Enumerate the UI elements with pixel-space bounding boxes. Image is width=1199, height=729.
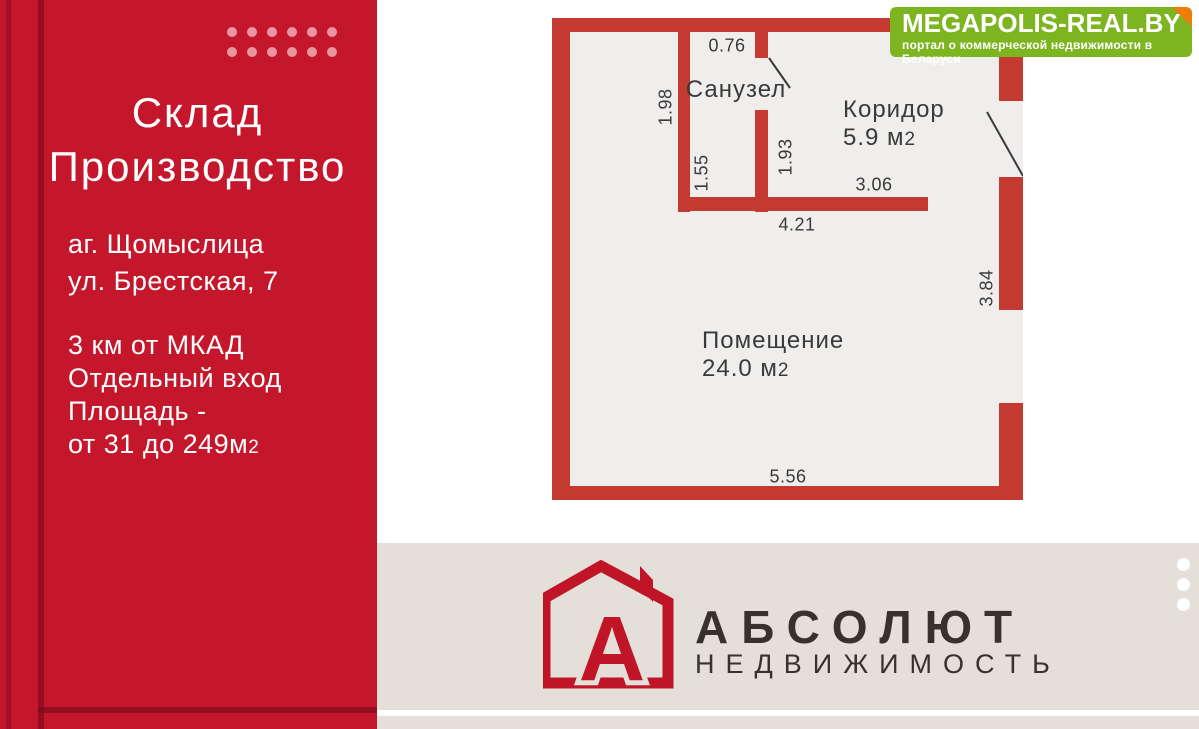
brand-name: АБСОЛЮТ [695,600,1025,654]
megapolis-title: MEGAPOLIS-REAL.BY [890,7,1192,38]
real-estate-flyer: Склад Производство аг. Щомыслица ул. Бре… [0,0,1199,729]
info-line-area-range: от 31 до 249м2 [68,428,282,464]
megapolis-logo-banner[interactable]: MEGAPOLIS-REAL.BY портал о коммерческой … [890,7,1192,57]
dim-5-56: 5.56 [769,467,806,488]
panel-frame-horizontal [38,707,377,713]
dot [327,27,337,37]
dot [1177,598,1190,611]
dim-4-21: 4.21 [778,215,815,236]
folded-corner-icon [1172,7,1192,27]
address-line-2: ул. Брестская, 7 [68,263,279,300]
dots-decoration [227,27,337,57]
room-label-corridor: Коридор 5.9 м2 [843,96,945,154]
dim-door-width: 0.76 [708,36,745,57]
address-block: аг. Щомыслица ул. Брестская, 7 [68,226,279,300]
dot [1177,558,1190,571]
dim-1-98: 1.98 [656,88,677,125]
dot [267,47,277,57]
area-superscript: 2 [248,437,259,458]
dot [327,47,337,57]
footer-banner: А АБСОЛЮТ НЕДВИЖИМОСТЬ [377,543,1199,710]
title-line-2: Производство [24,140,371,194]
room-label-main-room: Помещение 24.0 м2 [702,327,844,385]
megapolis-subtitle: портал о коммерческой недвижимости в Бел… [890,38,1192,66]
dot [247,27,257,37]
brand-subtitle: НЕДВИЖИМОСТЬ [695,649,1061,680]
dot [307,47,317,57]
info-line-entrance: Отдельный вход [68,362,282,395]
dot [1177,578,1190,591]
room-label-bathroom: Санузел [686,76,787,104]
dim-1-55: 1.55 [692,154,713,191]
logo-letter: А [579,598,645,690]
room-area-main-room: 24.0 м2 [702,355,844,385]
room-area-corridor: 5.9 м2 [843,124,945,154]
title-line-1: Склад [24,86,371,140]
footer-dots-decoration [1177,558,1190,611]
door-swing-lines [552,18,1023,500]
dot [287,27,297,37]
dot [287,47,297,57]
dot [227,47,237,57]
info-line-area-label: Площадь - [68,395,282,428]
dim-3-06: 3.06 [855,175,892,196]
absolut-house-logo-icon: А [543,558,678,690]
sidebar-panel: Склад Производство аг. Щомыслица ул. Бре… [0,0,377,729]
address-line-1: аг. Щомыслица [68,226,279,263]
dot [307,27,317,37]
dot [227,27,237,37]
entry-door-swing-line [987,112,1023,176]
dot [267,27,277,37]
property-info-block: 3 км от МКАД Отдельный вход Площадь - от… [68,329,282,464]
dim-1-93: 1.93 [776,138,797,175]
panel-spine-line [6,0,11,729]
dot [247,47,257,57]
floor-plan: 0.76 1.98 1.55 1.93 3.06 4.21 3.84 5.56 … [552,18,1023,500]
footer-bottom-strip [377,716,1199,729]
dim-3-84: 3.84 [977,269,998,306]
info-line-distance: 3 км от МКАД [68,329,282,362]
page-title: Склад Производство [24,86,371,194]
